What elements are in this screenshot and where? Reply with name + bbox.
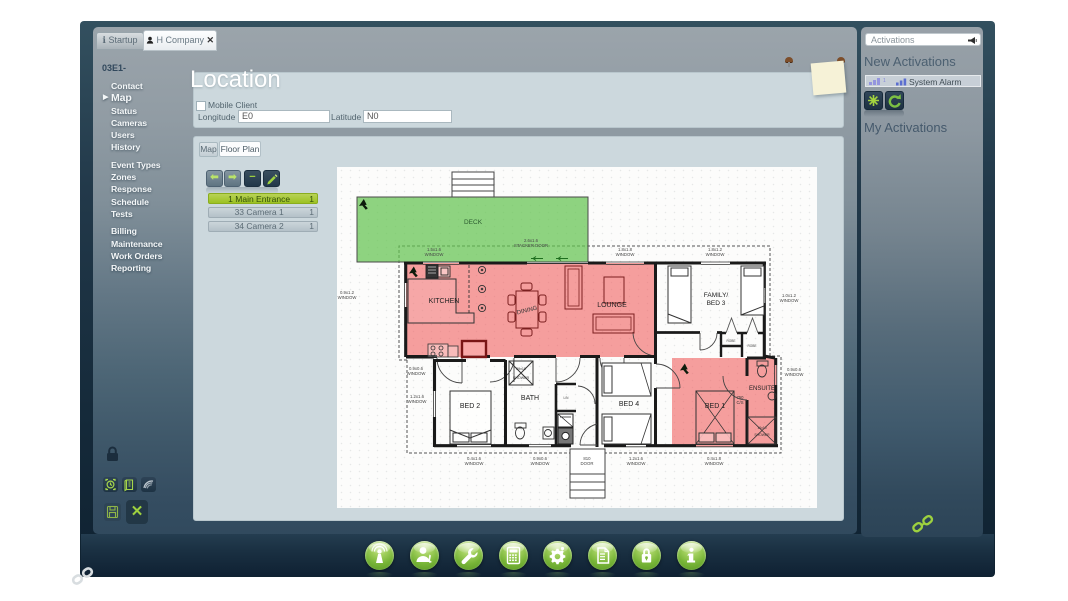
svg-text:L/N: L/N <box>564 396 570 400</box>
svg-text:WINDOW: WINDOW <box>465 461 485 466</box>
svg-text:WINDOW: WINDOW <box>616 252 636 257</box>
svg-text:WINDOW: WINDOW <box>425 252 445 257</box>
svg-text:WINDOW: WINDOW <box>408 399 428 404</box>
svg-text:ENSUITE: ENSUITE <box>749 386 775 392</box>
svg-text:BED 4: BED 4 <box>619 401 639 408</box>
svg-text:1: 1 <box>883 78 886 84</box>
svg-text:WINDOW: WINDOW <box>706 252 726 257</box>
svg-text:09x10: 09x10 <box>516 367 526 371</box>
svg-text:C/S: C/S <box>737 400 744 405</box>
svg-text:WINDOW: WINDOW <box>627 461 647 466</box>
svg-text:WINDOW: WINDOW <box>705 461 725 466</box>
svg-text:WINDOW: WINDOW <box>407 371 427 376</box>
svg-text:ROBE: ROBE <box>747 344 756 348</box>
svg-text:DOOR: DOOR <box>581 461 594 466</box>
svg-text:BED 1: BED 1 <box>705 403 725 410</box>
svg-text:LOUNGE: LOUNGE <box>597 302 627 309</box>
svg-text:10x10: 10x10 <box>757 426 766 430</box>
svg-text:WINDOW: WINDOW <box>531 461 551 466</box>
svg-text:WINDOW: WINDOW <box>338 295 358 300</box>
svg-text:WINDOW: WINDOW <box>780 298 800 303</box>
svg-text:BATH: BATH <box>521 395 539 402</box>
svg-text:STACKER DOOR: STACKER DOOR <box>514 243 548 248</box>
svg-text:BED 2: BED 2 <box>460 403 480 410</box>
svg-text:DECK: DECK <box>464 219 483 226</box>
svg-text:SHOWER: SHOWER <box>754 433 770 437</box>
svg-text:ROBE: ROBE <box>726 339 735 343</box>
svg-text:WINDOW: WINDOW <box>785 372 805 377</box>
svg-text:BED 3: BED 3 <box>707 300 726 307</box>
svg-text:FAMILY/: FAMILY/ <box>704 292 729 299</box>
svg-text:KITCHEN: KITCHEN <box>429 298 460 305</box>
svg-text:SHOWER: SHOWER <box>513 376 530 380</box>
